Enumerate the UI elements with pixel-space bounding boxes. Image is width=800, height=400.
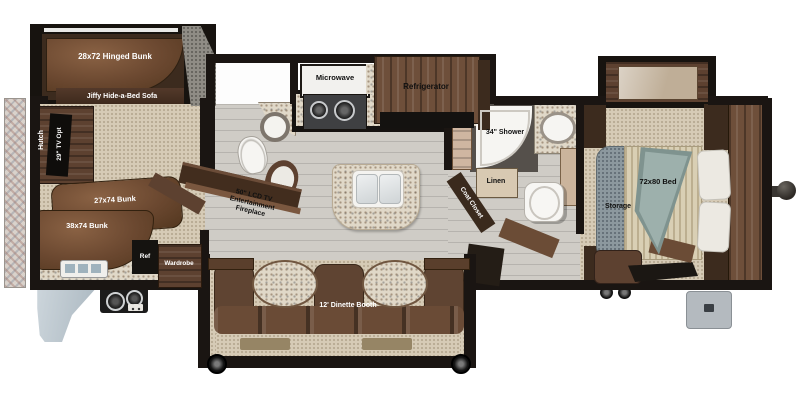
floor-mat: [362, 338, 412, 350]
slide-wheel: [207, 354, 227, 374]
floor-mat: [240, 338, 290, 350]
wardrobe-slide-panel: [618, 66, 698, 100]
griddle-pan: [65, 264, 75, 273]
dinette-slide-wall-bottom: [204, 356, 472, 368]
wall-top-bath: [494, 96, 610, 105]
burner-icon: [310, 101, 328, 119]
griddle-pan: [91, 264, 101, 273]
toilet-seat: [529, 186, 560, 220]
pillow: [697, 201, 732, 253]
bedroom-cabinet: [704, 104, 730, 150]
linen-label: Linen: [476, 177, 516, 187]
dinette-slide-wall-right: [464, 254, 476, 368]
burner-icon: [334, 100, 355, 121]
flipup-griddle: [60, 260, 108, 278]
wall-top-bedroom: [708, 96, 768, 105]
round-sink-icon: [260, 112, 290, 142]
bunk-38-label: 38x74 Bunk: [48, 221, 126, 231]
burner-icon: [106, 292, 125, 311]
wall-top-stub: [30, 96, 48, 104]
front-wardrobe: [728, 102, 766, 286]
ref-label: Ref: [132, 252, 158, 262]
bedroom-cabinet: [704, 250, 730, 284]
wall-bath-bedroom: [576, 98, 584, 234]
wall-front: [762, 98, 772, 290]
microwave-label: Microwave: [300, 73, 370, 83]
griddle-control-panel: [128, 304, 143, 311]
griddle-pan: [78, 264, 88, 273]
rear-rock-guard: [4, 98, 26, 288]
slide-wheel: [451, 354, 471, 374]
rv-floorplan: 28x72 Hinged Bunk Jiffy Hide-a-Bed Sofa …: [0, 0, 800, 400]
hide-a-bed-label: Jiffy Hide-a-Bed Sofa: [62, 92, 182, 102]
sink-bowl: [356, 174, 378, 204]
bed-label: 72x80 Bed: [618, 177, 698, 187]
entry-step: [686, 291, 732, 329]
wall-divider-upper: [200, 98, 209, 170]
dinette-label: 12' Dinette Booth: [304, 301, 392, 311]
wheel-fender-skirt: [36, 286, 98, 342]
pillow: [697, 149, 732, 201]
tv-opt-label: 29" TV Opt: [55, 115, 65, 173]
shower-label: 34" Shower: [476, 128, 534, 138]
slideout-roof-strip: [44, 28, 178, 32]
range-cooktop: [303, 94, 367, 130]
storage-label: Storage: [594, 202, 642, 212]
refrigerator-label: Refrigerator: [374, 82, 478, 92]
sink-bowl: [379, 174, 401, 204]
fridge-base: [380, 112, 474, 128]
hitch-ball-icon: [777, 181, 796, 200]
outdoor-griddle: [100, 287, 148, 313]
wardrobe-label: Wardrobe: [157, 259, 201, 269]
dinette-armrest: [208, 258, 254, 270]
hutch-label: Hutch: [37, 112, 47, 168]
step-latch: [704, 304, 714, 312]
dinette-armrest: [424, 258, 470, 270]
bath-sink-icon: [540, 112, 576, 144]
hinged-bunk-label: 28x72 Hinged Bunk: [48, 52, 182, 62]
halfbath-door-area: [213, 61, 293, 105]
bedroom-cabinet: [584, 104, 606, 148]
